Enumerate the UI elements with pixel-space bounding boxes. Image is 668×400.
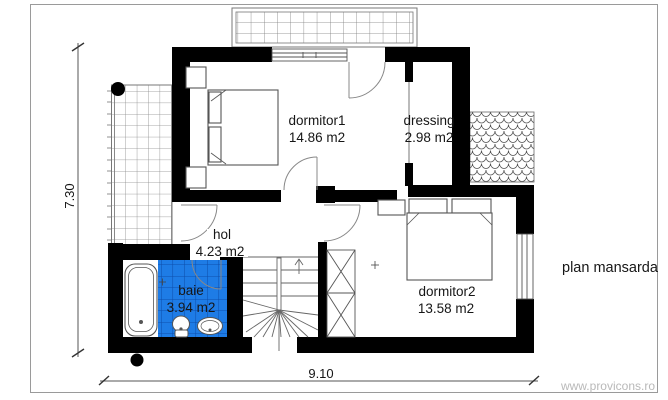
- room-label-baie: baie: [178, 283, 204, 298]
- room-label-dressing: dressing: [403, 113, 454, 128]
- roof-hatch: [470, 112, 534, 182]
- room-area-dormitor2: 13.58 m2: [418, 301, 474, 316]
- column-dot-bottom: [131, 354, 144, 367]
- column-dot-top: [111, 82, 125, 96]
- pillow: [209, 92, 221, 123]
- bathtub: [125, 264, 157, 336]
- room-area-baie: 3.94 m2: [167, 300, 216, 315]
- nightstand: [186, 167, 206, 188]
- nightstand: [378, 200, 405, 215]
- room-label-hol: hol: [213, 227, 231, 242]
- room-area-dressing: 2.98 m2: [405, 130, 454, 145]
- stairs-handrail: [277, 258, 281, 310]
- sink: [198, 318, 223, 335]
- dim-width-label: 9.10: [308, 366, 333, 381]
- window-top: [272, 49, 347, 61]
- nightstand: [186, 67, 206, 88]
- pillow: [209, 127, 221, 162]
- bed-dormitor1: [186, 67, 278, 188]
- watermark: www.provicons.ro: [560, 379, 655, 393]
- balcony-hatch: [232, 8, 417, 47]
- room-area-dormitor1: 14.86 m2: [289, 130, 345, 145]
- wardrobe-x: [327, 250, 355, 337]
- door-balcony-arc: [349, 62, 385, 98]
- room-label-dormitor2: dormitor2: [418, 284, 475, 299]
- plan-title: plan mansarda: [562, 260, 659, 276]
- pillow: [409, 199, 447, 213]
- door-dormitor1-arc: [284, 157, 317, 190]
- terrace-railing-ticks: [107, 91, 111, 240]
- stairs: [243, 257, 318, 351]
- bed-dormitor2: [378, 199, 492, 280]
- room-label-dormitor1: dormitor1: [288, 113, 345, 128]
- pillow: [452, 199, 491, 213]
- door-dormitor2-arc: [324, 205, 360, 241]
- floor-plan-canvas: dormitor1 14.86 m2 dressing 2.98 m2 hol …: [0, 0, 668, 400]
- window-right: [517, 234, 533, 299]
- toilet: [173, 316, 190, 337]
- floor-plan-page: dormitor1 14.86 m2 dressing 2.98 m2 hol …: [0, 0, 668, 400]
- stairs-up-arrow: [295, 259, 303, 274]
- dim-height-label: 7.30: [62, 183, 77, 208]
- room-area-hol: 4.23 m2: [196, 244, 245, 259]
- terrace-hatch: [107, 85, 172, 250]
